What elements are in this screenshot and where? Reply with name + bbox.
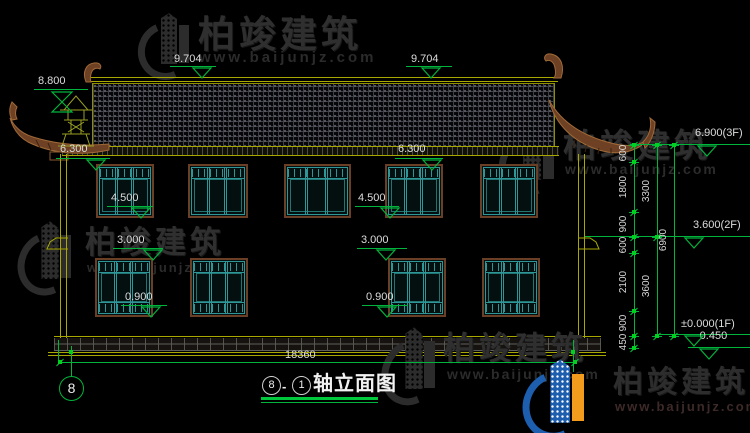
level-triangle-icon bbox=[376, 249, 396, 261]
dim-value-vertical: 600 bbox=[619, 228, 629, 262]
floor-level-3f: 6.900(3F) bbox=[695, 128, 743, 139]
cornice-left-icon bbox=[46, 237, 68, 250]
dim-grip bbox=[655, 143, 659, 147]
dim-chain-line bbox=[634, 145, 635, 348]
lattice-window bbox=[482, 258, 540, 317]
level-triangle-icon bbox=[697, 145, 717, 157]
dim-value-vertical: 600 bbox=[619, 136, 629, 170]
dim-grip bbox=[571, 350, 575, 354]
level-triangle-icon bbox=[684, 335, 704, 347]
floor-level-1f: ±0.000(1F) bbox=[681, 319, 735, 330]
watermark-url: www.baijunjz.com bbox=[199, 50, 376, 65]
level-triangle-icon bbox=[192, 67, 212, 79]
cad-elevation-drawing: 柏竣建筑 www.baijunjz.com 柏竣建筑 www.baijunjz.… bbox=[0, 0, 750, 433]
level-label-lower-head: 3.000 bbox=[361, 235, 389, 246]
dim-grip bbox=[632, 251, 636, 255]
dim-line bbox=[688, 347, 750, 348]
level-triangle-icon bbox=[422, 159, 442, 171]
level-triangle-icon bbox=[380, 207, 400, 219]
lattice-window bbox=[188, 164, 248, 218]
roof-ridge-line bbox=[88, 77, 558, 78]
level-label-ridge: 9.704 bbox=[174, 54, 202, 65]
lattice-window bbox=[480, 164, 538, 218]
level-triangle-icon bbox=[131, 207, 151, 219]
dim-chain-line bbox=[674, 145, 675, 336]
level-label-lower-sill: 0.900 bbox=[366, 292, 394, 303]
dim-grip bbox=[655, 334, 659, 338]
dim-value-vertical: 6900 bbox=[659, 223, 669, 257]
dim-grip bbox=[632, 160, 636, 164]
level-label-eave: 6.300 bbox=[60, 144, 88, 155]
level-triangle-icon bbox=[699, 348, 719, 360]
title-axis-start-bubble: 8 bbox=[262, 376, 281, 395]
dim-value-vertical: 1800 bbox=[619, 170, 629, 204]
title-axis-end-bubble: 1 bbox=[292, 376, 311, 395]
level-label-finial: 8.800 bbox=[38, 76, 66, 87]
level-label-lower-sill: 0.900 bbox=[125, 292, 153, 303]
dim-grip bbox=[632, 235, 636, 239]
level-triangle-icon bbox=[377, 306, 397, 318]
dim-grip bbox=[632, 346, 636, 350]
roof-ridge-line bbox=[88, 81, 558, 82]
title-underline bbox=[261, 397, 378, 400]
lattice-window bbox=[190, 258, 248, 317]
dim-grip bbox=[58, 360, 62, 364]
level-label-upper-sill: 4.500 bbox=[111, 193, 139, 204]
total-width-dimension: 18360 bbox=[285, 350, 316, 361]
dim-grip bbox=[672, 334, 676, 338]
dim-line bbox=[34, 89, 88, 90]
dim-grip bbox=[632, 143, 636, 147]
eave-fascia-band bbox=[62, 146, 559, 156]
brand-name: 柏竣建筑 bbox=[613, 368, 749, 398]
dim-value-vertical: 2100 bbox=[619, 265, 629, 299]
level-label-upper-sill: 4.500 bbox=[358, 193, 386, 204]
dim-value-vertical: 3300 bbox=[642, 174, 652, 208]
title-underline bbox=[261, 402, 378, 403]
dim-grip bbox=[632, 210, 636, 214]
roof-tile-surface bbox=[92, 83, 555, 148]
dim-grip bbox=[632, 309, 636, 313]
ridge-ornament-left-icon bbox=[80, 60, 104, 84]
brand-logo-icon bbox=[528, 358, 590, 430]
watermark-logo-icon bbox=[22, 220, 76, 286]
dim-line bbox=[59, 362, 575, 363]
floor-level-2f: 3.600(2F) bbox=[693, 220, 741, 231]
level-triangle-icon bbox=[86, 159, 106, 171]
watermark-brand: 柏竣建筑 bbox=[198, 16, 362, 53]
level-triangle-icon bbox=[143, 249, 163, 261]
cornice-right-icon bbox=[578, 237, 600, 250]
level-triangle-icon bbox=[141, 306, 161, 318]
ridge-ornament-right-icon bbox=[541, 52, 567, 80]
dim-value-vertical: 3600 bbox=[642, 269, 652, 303]
dim-grip bbox=[672, 143, 676, 147]
title-dash: - bbox=[282, 379, 286, 394]
lattice-window bbox=[284, 164, 351, 218]
level-triangle-icon bbox=[684, 237, 704, 249]
drawing-title: 轴立面图 bbox=[313, 374, 397, 394]
dim-value-vertical: 450 bbox=[619, 325, 629, 359]
dim-grip bbox=[69, 350, 73, 354]
axis-bubble-8: 8 bbox=[59, 376, 84, 401]
dim-line bbox=[630, 144, 750, 145]
level-label-eave: 6.300 bbox=[398, 144, 426, 155]
level-label-ridge: 9.704 bbox=[411, 54, 439, 65]
upturned-eave-right-icon bbox=[545, 98, 657, 172]
dim-grip bbox=[632, 334, 636, 338]
level-triangle-icon bbox=[421, 67, 441, 79]
level-marker-hourglass-icon bbox=[50, 91, 74, 113]
brand-url: www.baijunjz.com bbox=[615, 400, 750, 413]
level-label-lower-head: 3.000 bbox=[117, 235, 145, 246]
